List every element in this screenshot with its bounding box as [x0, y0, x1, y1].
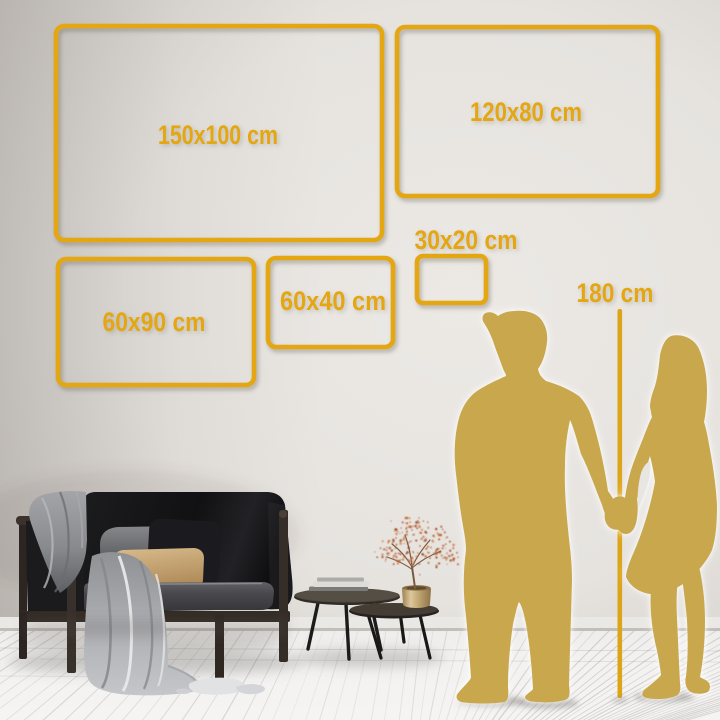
svg-text:60x40 cm: 60x40 cm [280, 286, 386, 316]
svg-text:180 cm: 180 cm [577, 278, 654, 308]
svg-text:150x100 cm: 150x100 cm [158, 120, 278, 150]
svg-text:30x20 cm: 30x20 cm [415, 225, 518, 255]
svg-text:120x80 cm: 120x80 cm [470, 97, 582, 127]
svg-text:60x90 cm: 60x90 cm [103, 307, 206, 337]
